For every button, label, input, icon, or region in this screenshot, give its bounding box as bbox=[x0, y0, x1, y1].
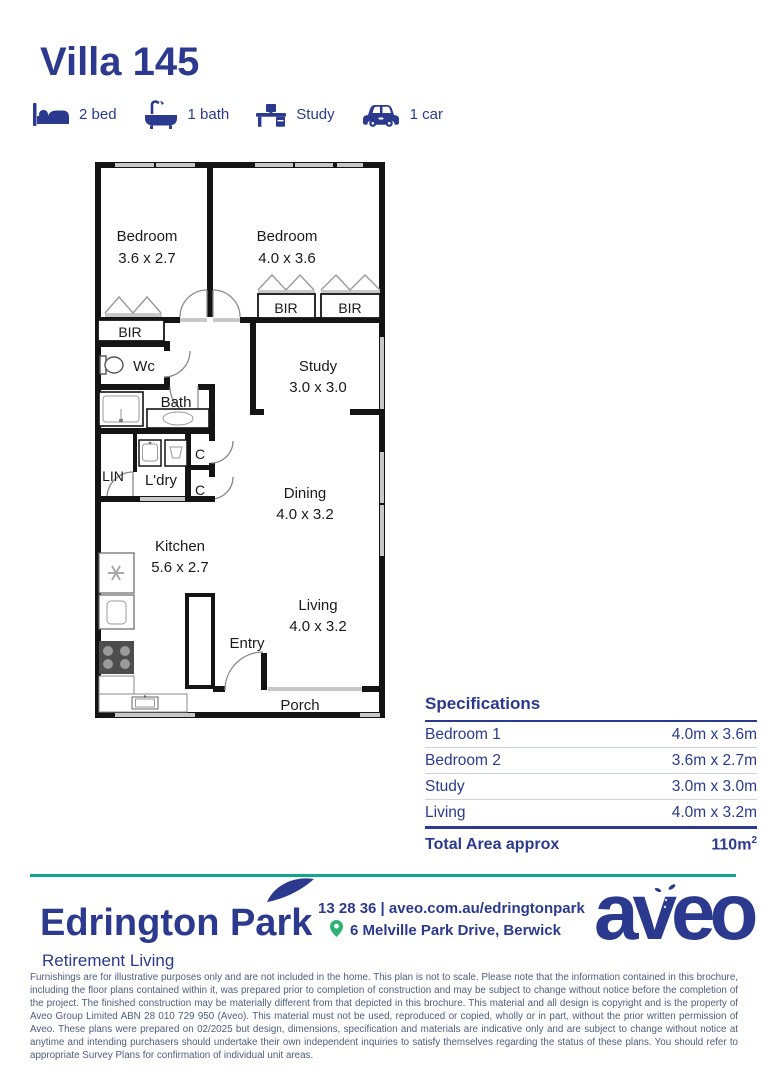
label-bir: BIR bbox=[274, 300, 297, 316]
label-ldry: L'dry bbox=[145, 472, 178, 489]
specifications-table: Specifications Bedroom 1 4.0m x 3.6m Bed… bbox=[425, 694, 757, 854]
address-text: 6 Melville Park Drive, Berwick bbox=[350, 922, 561, 939]
spec-row-study: Study 3.0m x 3.0m bbox=[425, 774, 757, 800]
spec-value: 3.0m x 3.0m bbox=[672, 778, 757, 796]
room-dims-kitchen: 5.6 x 2.7 bbox=[151, 559, 209, 576]
label-wc: Wc bbox=[133, 358, 155, 375]
label-lin: LIN bbox=[102, 468, 124, 484]
spec-value: 4.0m x 3.6m bbox=[672, 726, 757, 744]
spec-value: 3.6m x 2.7m bbox=[672, 752, 757, 770]
room-label-study: Study bbox=[299, 358, 338, 375]
spec-total-label: Total Area approx bbox=[425, 836, 559, 854]
aveo-logo: aveo bbox=[594, 872, 752, 952]
label-entry: Entry bbox=[229, 635, 265, 652]
spec-total-row: Total Area approx 110m2 bbox=[425, 826, 757, 854]
address-line: 6 Melville Park Drive, Berwick bbox=[330, 920, 561, 941]
specifications-title: Specifications bbox=[425, 694, 757, 722]
phone-and-url: 13 28 36 | aveo.com.au/edringtonpark bbox=[318, 900, 585, 917]
feature-beds: 2 bed bbox=[33, 101, 117, 127]
feature-study: Study bbox=[256, 101, 334, 127]
room-dims-dining: 4.0 x 3.2 bbox=[276, 506, 334, 523]
room-label-dining: Dining bbox=[284, 485, 327, 502]
room-label-living: Living bbox=[298, 597, 337, 614]
page-title: Villa 145 bbox=[40, 40, 199, 85]
room-label-bedroom2: Bedroom bbox=[257, 228, 318, 245]
room-dims-study: 3.0 x 3.0 bbox=[289, 379, 347, 396]
feature-cars: 1 car bbox=[362, 101, 443, 127]
feature-label: 1 bath bbox=[188, 106, 230, 123]
spec-label: Bedroom 1 bbox=[425, 726, 501, 744]
brand-name: Edrington Park bbox=[40, 904, 312, 942]
room-label-bedroom1: Bedroom bbox=[117, 228, 178, 245]
feature-summary: 2 bed 1 bath bbox=[33, 99, 470, 129]
spec-row-bedroom1: Bedroom 1 4.0m x 3.6m bbox=[425, 722, 757, 748]
room-label-kitchen: Kitchen bbox=[155, 538, 205, 555]
label-porch: Porch bbox=[280, 697, 319, 714]
brand-tagline: Retirement Living bbox=[42, 951, 174, 971]
spec-label: Bedroom 2 bbox=[425, 752, 501, 770]
room-dims-living: 4.0 x 3.2 bbox=[289, 618, 347, 635]
label-bath: Bath bbox=[161, 394, 192, 411]
bed-icon bbox=[33, 101, 69, 127]
label-bir: BIR bbox=[118, 324, 141, 340]
room-dims-bedroom1: 3.6 x 2.7 bbox=[118, 250, 176, 267]
spec-row-bedroom2: Bedroom 2 3.6m x 2.7m bbox=[425, 748, 757, 774]
feature-label: Study bbox=[296, 106, 334, 123]
feature-label: 1 car bbox=[410, 106, 443, 123]
spec-total-value: 110m2 bbox=[711, 835, 757, 854]
spec-label: Living bbox=[425, 804, 466, 822]
label-bir: BIR bbox=[338, 300, 361, 316]
spec-value: 4.0m x 3.2m bbox=[672, 804, 757, 822]
legal-text: Furnishings are for illustrative purpose… bbox=[30, 971, 738, 1062]
feature-label: 2 bed bbox=[79, 106, 117, 123]
desk-icon bbox=[256, 101, 286, 127]
label-cupboard: C bbox=[195, 482, 205, 498]
spec-row-living: Living 4.0m x 3.2m bbox=[425, 800, 757, 826]
location-pin-icon bbox=[330, 920, 343, 941]
car-icon bbox=[362, 101, 400, 127]
brochure-page: Villa 145 2 bed 1 bbox=[0, 0, 764, 1080]
bath-icon bbox=[144, 99, 178, 129]
leaf-icon bbox=[266, 876, 316, 909]
room-dims-bedroom2: 4.0 x 3.6 bbox=[258, 250, 316, 267]
spec-label: Study bbox=[425, 778, 465, 796]
floorplan: Bedroom 3.6 x 2.7 Bedroom 4.0 x 3.6 BIR … bbox=[90, 157, 390, 723]
label-cupboard: C bbox=[195, 446, 205, 462]
feature-baths: 1 bath bbox=[144, 99, 230, 129]
